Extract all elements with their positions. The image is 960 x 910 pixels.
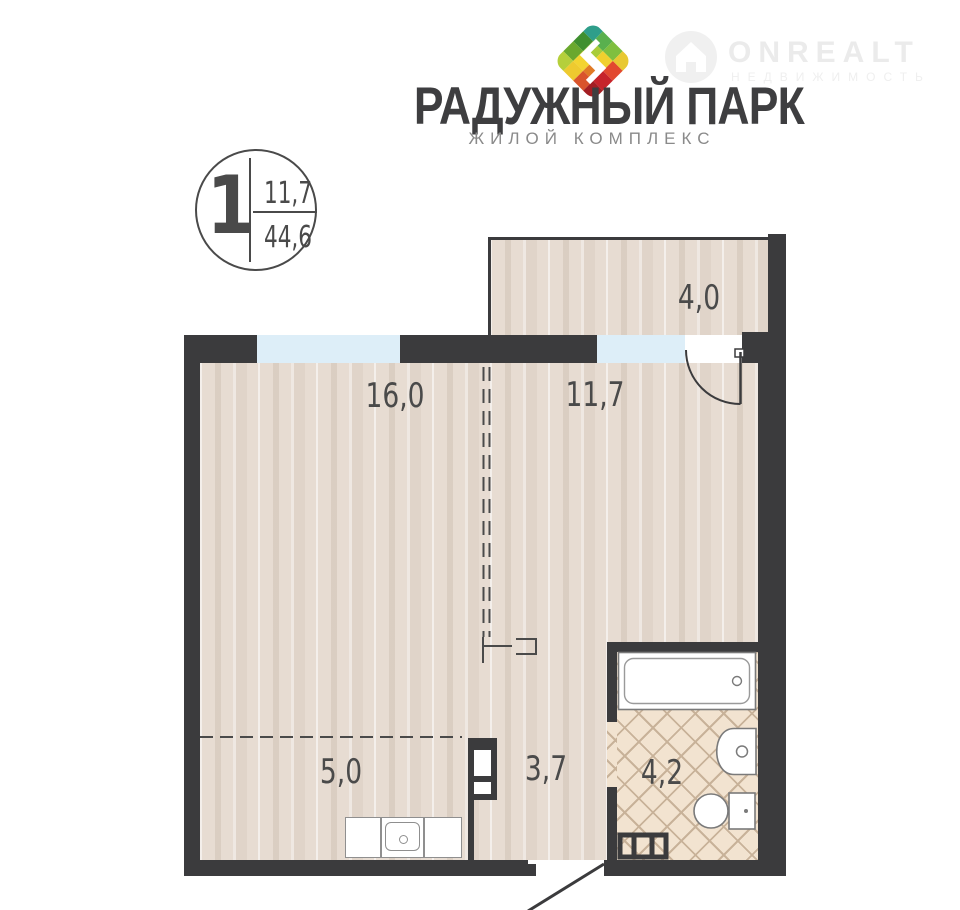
loggia-wall-left [488,237,491,335]
vent-shaft-slot-1 [474,750,491,776]
room-area-label-hallway: 3,7 [525,749,567,789]
wall-right-upper [768,234,786,363]
floor-plan: 4,0 16,0 11,7 5,0 3,7 4,2 [0,0,960,910]
wall-bottom-right [604,860,786,876]
kitchen-partition-wall [468,800,474,860]
room-window [597,335,685,363]
wall-left [184,335,200,876]
bathroom-floor [617,652,758,860]
bathroom-wall-left-upper [607,642,617,722]
sink-drain-icon [399,835,408,844]
room-area-label-loggia: 4,0 [678,278,720,318]
vent-shaft-slot-2 [474,782,491,794]
bathroom-wall-left-lower [607,787,617,860]
living-room-window [257,335,400,363]
wall-top-middle [400,335,597,363]
kitchen-sink-icon [385,822,420,851]
counter-divider [380,818,382,857]
bathroom-door-opening [607,722,617,787]
loggia-wall-top [488,237,770,240]
wall-bottom-left [184,860,528,876]
entrance-opening [536,860,604,876]
room-area-label-room: 11,7 [565,375,624,415]
floorplan-page: РАДУЖНЫЙ ПАРК ЖИЛОЙ КОМПЛЕКС ONREALT НЕД… [0,0,960,910]
counter-divider [423,818,425,857]
room-area-label-kitchen: 5,0 [320,752,362,792]
bathroom-wall-top [607,642,758,652]
room-area-label-bathroom: 4,2 [641,753,683,793]
loggia-floor [490,239,768,335]
wall-right-lower [758,363,786,876]
wall-entrance-jamb [528,864,536,876]
kitchen-counter [345,817,462,858]
room-area-label-living: 16,0 [365,376,424,416]
